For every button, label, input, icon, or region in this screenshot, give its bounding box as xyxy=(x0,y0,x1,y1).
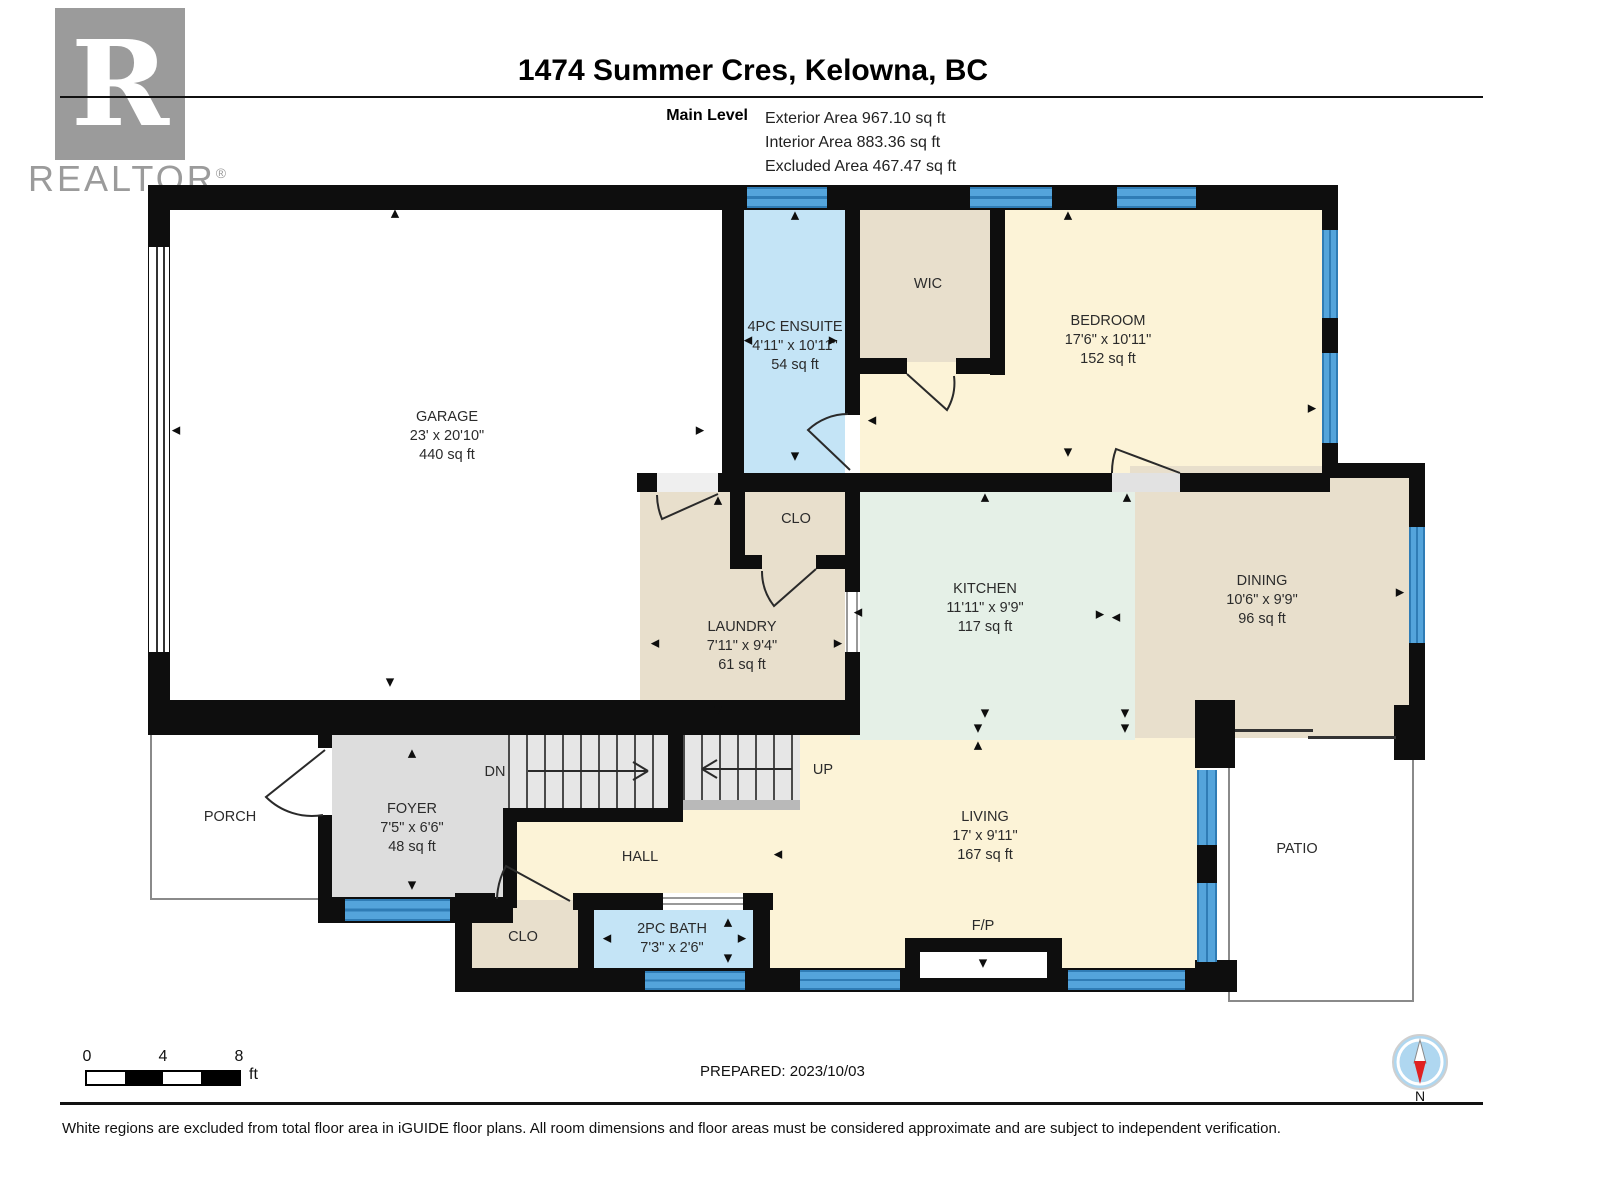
dimension-arrow-l: ◀ xyxy=(651,638,659,649)
room-label-patio: PATIO xyxy=(1276,840,1317,859)
dimension-arrow-l: ◀ xyxy=(854,607,862,618)
room-label-laundry: LAUNDRY7'11" x 9'4"61 sq ft xyxy=(707,618,777,675)
dimension-arrow-d: ▼ xyxy=(408,880,416,891)
dimension-arrow-r: ▶ xyxy=(834,638,842,649)
door-wic xyxy=(907,374,954,410)
floorplan-page: { "header": { "logo_text": "REALTOR", "l… xyxy=(0,0,1600,1200)
door-swing-layer xyxy=(0,0,1600,1200)
dimension-arrow-l: ◀ xyxy=(744,335,752,346)
stairs-down-arrow xyxy=(528,762,648,780)
dimension-arrow-r: ▶ xyxy=(1396,587,1404,598)
dimension-arrow-r: ▶ xyxy=(1308,403,1316,414)
dimension-arrow-d: ▼ xyxy=(974,723,982,734)
room-label-dining: DINING10'6" x 9'9"96 sq ft xyxy=(1226,572,1297,629)
door-bedroom xyxy=(1112,449,1180,473)
dimension-arrow-l: ◀ xyxy=(1112,612,1120,623)
dimension-arrow-d: ▼ xyxy=(979,958,987,969)
dimension-arrow-r: ▶ xyxy=(738,933,746,944)
dimension-arrow-u: ▲ xyxy=(391,208,399,219)
room-label-porch: PORCH xyxy=(204,808,256,827)
dimension-arrow-d: ▼ xyxy=(1064,447,1072,458)
dimension-arrow-l: ◀ xyxy=(868,415,876,426)
dimension-arrow-d: ▼ xyxy=(386,677,394,688)
room-label-fireplace: F/P xyxy=(972,917,995,936)
dimension-arrow-u: ▲ xyxy=(981,492,989,503)
dimension-arrow-u: ▲ xyxy=(1123,492,1131,503)
room-label-bath: 2PC BATH7'3" x 2'6" xyxy=(637,920,707,958)
dimension-arrow-r: ▶ xyxy=(696,425,704,436)
dimension-arrow-u: ▲ xyxy=(724,917,732,928)
dimension-arrow-d: ▼ xyxy=(714,705,722,716)
dimension-arrow-l: ◀ xyxy=(172,425,180,436)
room-label-closet-upper: CLO xyxy=(781,510,811,529)
dimension-arrow-l: ◀ xyxy=(774,849,782,860)
dimension-arrow-r: ▶ xyxy=(1096,609,1104,620)
stairs-up-arrow xyxy=(702,760,792,778)
room-label-foyer: FOYER7'5" x 6'6"48 sq ft xyxy=(380,800,443,857)
door-closet-lower xyxy=(497,866,570,901)
dimension-arrow-d: ▼ xyxy=(791,451,799,462)
room-label-hall: HALL xyxy=(622,848,658,867)
dimension-arrow-u: ▲ xyxy=(714,495,722,506)
dimension-arrow-u: ▲ xyxy=(974,740,982,751)
door-front xyxy=(266,750,325,816)
room-label-stairs-down: DN xyxy=(485,763,506,782)
door-ensuite xyxy=(808,414,850,470)
room-label-kitchen: KITCHEN11'11" x 9'9"117 sq ft xyxy=(946,580,1023,637)
door-garage-laundry xyxy=(657,494,718,519)
dimension-arrow-u: ▲ xyxy=(791,210,799,221)
room-label-closet-lower: CLO xyxy=(508,928,538,947)
room-label-garage: GARAGE23' x 20'10"440 sq ft xyxy=(410,408,484,465)
dimension-arrow-d: ▼ xyxy=(981,708,989,719)
room-label-stairs-up: UP xyxy=(813,761,833,780)
dimension-arrow-d: ▼ xyxy=(1121,723,1129,734)
door-closet-upper xyxy=(762,569,816,606)
dimension-arrow-u: ▲ xyxy=(408,748,416,759)
room-label-living: LIVING17' x 9'11"167 sq ft xyxy=(952,808,1017,865)
dimension-arrow-r: ▶ xyxy=(1201,855,1209,866)
dimension-arrow-d: ▼ xyxy=(724,953,732,964)
dimension-arrow-d: ▼ xyxy=(1121,708,1129,719)
room-label-bedroom: BEDROOM17'6" x 10'11"152 sq ft xyxy=(1065,312,1152,369)
floor-plan: GARAGE23' x 20'10"440 sq ft4PC ENSUITE4'… xyxy=(0,0,1600,1200)
dimension-arrow-r: ▶ xyxy=(829,335,837,346)
dimension-arrow-l: ◀ xyxy=(603,933,611,944)
room-label-wic: WIC xyxy=(914,275,942,294)
dimension-arrow-u: ▲ xyxy=(1064,210,1072,221)
